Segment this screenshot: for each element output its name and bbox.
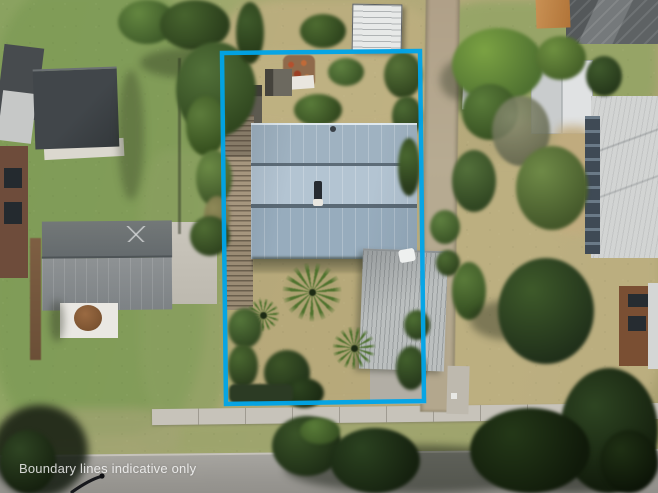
yard-tree-right [398,138,420,196]
brown-house-window [628,316,646,331]
tree-column-top [236,2,264,64]
yard-shrub [294,94,342,126]
crossing-path [446,366,469,415]
patio-shadow [50,300,64,342]
tree-canopy [600,430,658,493]
top-right-house-roof [566,0,658,44]
left-shed-roof [33,67,120,150]
tv-antenna [126,226,146,242]
garden-bush [404,310,430,340]
palm-tree [282,262,342,322]
caravan [352,4,403,52]
tree-canopy [498,258,594,364]
brown-house-roof-strip [648,283,658,369]
timber-fence [30,238,41,360]
tree-canopy [516,146,588,230]
tree-canopy [586,56,622,96]
tree-shadow-left-lawn [118,70,144,200]
disclaimer-text: Boundary lines indicative only [19,461,196,476]
side-garden [228,344,258,388]
tree-canopy [470,408,590,493]
patio-table [74,305,102,331]
brick-house-window [4,168,22,188]
yard-shrub [328,58,364,86]
tree-canopy-highlight [300,418,340,444]
bush-top-mid [300,14,346,48]
roof-vent [330,126,336,132]
brick-house [0,146,28,278]
palm-tree [332,326,376,370]
tree-canopy [330,428,420,493]
utility-box [451,393,457,399]
tree-canopy [452,150,496,212]
tree-canopy [186,96,226,156]
right-house-metal-roof [591,96,658,258]
chimney-base [313,199,323,206]
roof-shading [251,123,417,259]
yard-tree [384,52,422,98]
tree-canopy [190,216,230,256]
front-hedge [229,384,293,403]
brick-house-window [4,202,22,224]
garden-shed-b [265,69,292,96]
orange-shed [535,0,570,29]
corner-structure-light [0,90,37,144]
tree-canopy [536,36,586,80]
aerial-photo: Boundary lines indicative only [0,0,658,493]
white-car [398,248,416,264]
left-house-roof-upper [42,220,172,258]
deck-stairs [226,240,253,310]
garden-bush [396,346,426,390]
side-garden [228,308,262,348]
brown-house-window [628,294,648,307]
lane-shrub [430,210,460,244]
